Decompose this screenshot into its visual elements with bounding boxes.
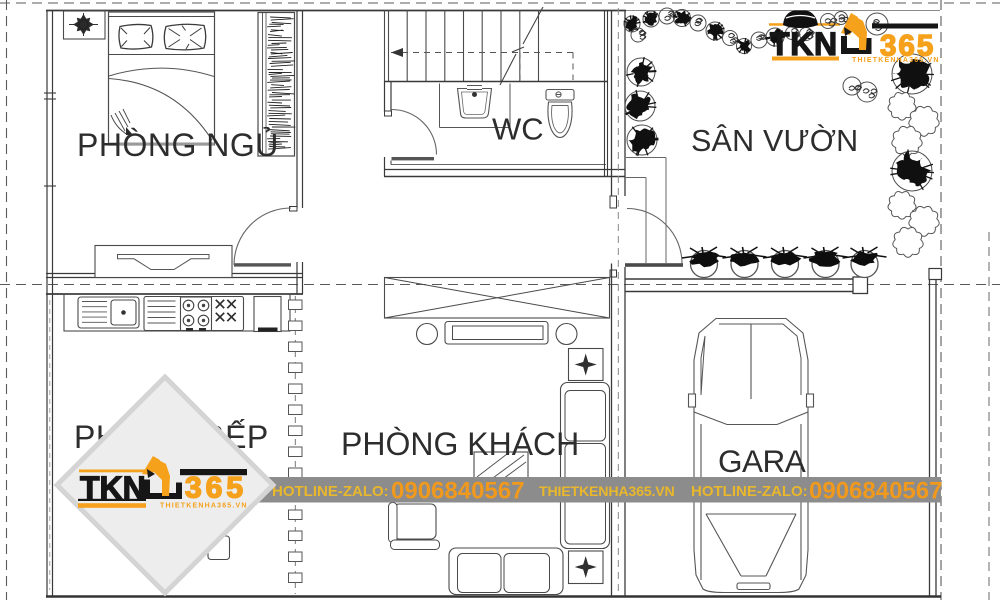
svg-text:0906840567: 0906840567 [391, 478, 524, 505]
svg-text:0906840567: 0906840567 [809, 478, 942, 505]
svg-text:SÂN VƯỜN: SÂN VƯỜN [691, 123, 858, 158]
svg-text:PHÒNG NGỦ: PHÒNG NGỦ [77, 127, 279, 163]
svg-text:THIETKENHA365.VN: THIETKENHA365.VN [539, 484, 675, 500]
svg-text:GARA: GARA [718, 443, 806, 479]
svg-text:365: 365 [185, 472, 247, 505]
svg-text:PHÒNG KHÁCH: PHÒNG KHÁCH [341, 426, 579, 462]
svg-text:HOTLINE-ZALO:: HOTLINE-ZALO: [272, 483, 389, 500]
svg-text:WC: WC [492, 112, 544, 147]
svg-text:THIETKENHA365.VN: THIETKENHA365.VN [160, 503, 248, 510]
svg-text:HOTLINE-ZALO:: HOTLINE-ZALO: [691, 483, 808, 500]
svg-text:THIETKENHA365.VN: THIETKENHA365.VN [852, 57, 940, 64]
